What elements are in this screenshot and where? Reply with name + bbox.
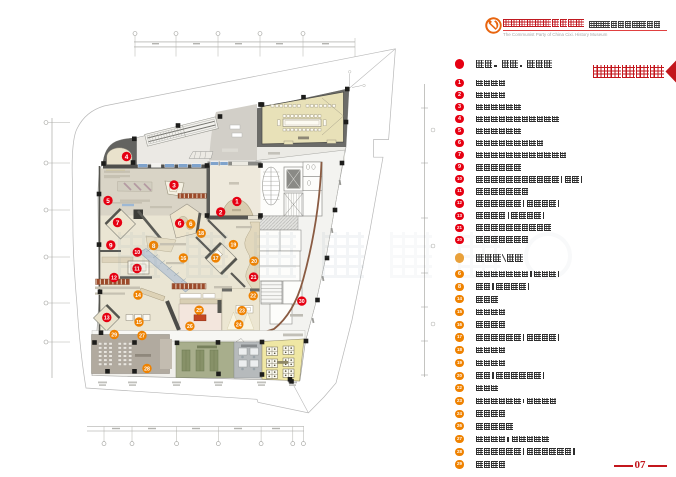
svg-text:5: 5	[106, 198, 110, 205]
svg-text:15: 15	[136, 320, 142, 326]
svg-text:6: 6	[178, 221, 182, 228]
svg-text:3: 3	[172, 182, 176, 189]
svg-text:7: 7	[116, 220, 120, 227]
svg-text:19: 19	[231, 243, 237, 249]
svg-text:2: 2	[219, 209, 223, 216]
svg-text:12: 12	[111, 275, 117, 281]
svg-text:29: 29	[111, 332, 117, 338]
svg-text:9: 9	[109, 242, 113, 249]
svg-text:4: 4	[125, 154, 129, 161]
svg-text:1: 1	[235, 199, 239, 206]
svg-text:14: 14	[135, 293, 141, 299]
svg-text:28: 28	[144, 366, 150, 372]
svg-text:25: 25	[196, 308, 202, 314]
svg-text:27: 27	[139, 333, 145, 339]
svg-text:22: 22	[250, 294, 256, 300]
svg-text:24: 24	[236, 322, 242, 328]
svg-text:30: 30	[299, 299, 305, 305]
svg-text:26: 26	[187, 324, 193, 330]
svg-text:13: 13	[104, 315, 110, 321]
svg-text:6: 6	[189, 221, 193, 228]
svg-text:23: 23	[239, 309, 245, 315]
